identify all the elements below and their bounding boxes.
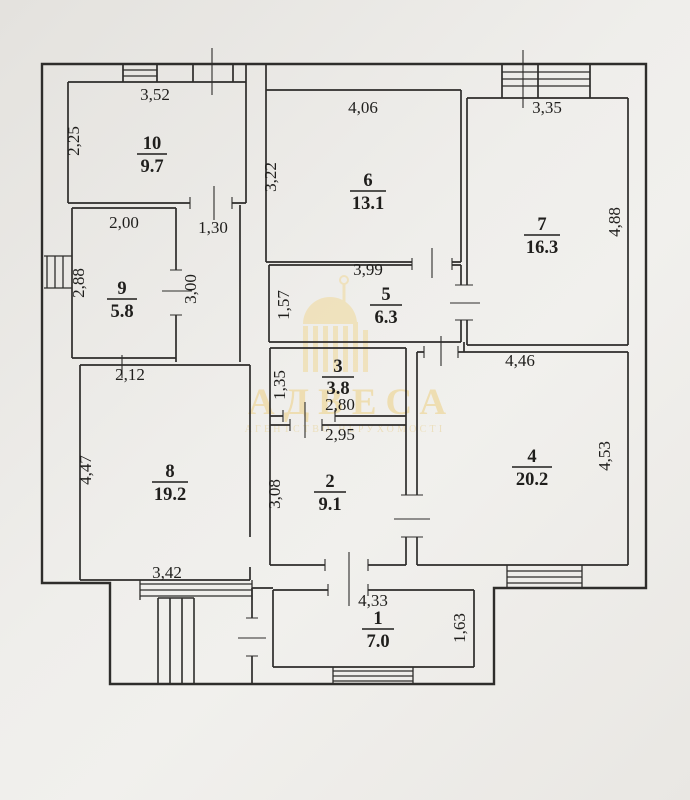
room-9-top-dim: 2,00 bbox=[109, 213, 139, 232]
room-8-number-label: 8 bbox=[165, 462, 174, 482]
room-8-bottom-dim: 3,42 bbox=[152, 563, 182, 582]
room-7-top-dim: 3,35 bbox=[532, 98, 562, 117]
room-6-top-dim: 4,06 bbox=[348, 98, 378, 117]
room-3-left-dim: 1,35 bbox=[270, 370, 289, 400]
room-4-area-label: 20.2 bbox=[516, 470, 548, 490]
room-3-number-label: 3 bbox=[333, 357, 342, 377]
room-1-area-label: 7.0 bbox=[366, 632, 389, 652]
room-2-top-dim: 2,95 bbox=[325, 425, 355, 444]
room-1-number-label: 1 bbox=[373, 609, 382, 629]
room-4-right-dim: 4,53 bbox=[595, 441, 614, 471]
room-6-number-label: 6 bbox=[363, 171, 372, 191]
room-7-right-dim: 4,88 bbox=[605, 207, 624, 237]
room-7-region bbox=[467, 98, 628, 345]
room-10-top-dim: 3,52 bbox=[140, 85, 170, 104]
corridor-top-dim: 1,30 bbox=[198, 218, 228, 237]
room-8-top-dim: 2,12 bbox=[115, 365, 145, 384]
room-5-top-dim: 3,99 bbox=[353, 260, 383, 279]
floor-plan-drawing: АДВЕСА АГЕНТСТВО НЕРУХОМОСТІ 3,52 2,25 2… bbox=[0, 0, 690, 800]
room-3-area-label: 3.8 bbox=[326, 379, 349, 399]
room-1-right-dim: 1,63 bbox=[450, 613, 469, 643]
staircase-steps bbox=[158, 598, 194, 684]
room-5-number-label: 5 bbox=[381, 285, 390, 305]
room-1-top-dim: 4,33 bbox=[358, 591, 388, 610]
room-5-left-dim: 1,57 bbox=[274, 290, 293, 320]
room-8-area-label: 19.2 bbox=[154, 485, 186, 505]
room-2-area-label: 9.1 bbox=[318, 495, 341, 515]
corridor-right-dim: 3,00 bbox=[181, 274, 200, 304]
room-10-number-label: 10 bbox=[143, 134, 162, 154]
room-9-number-label: 9 bbox=[117, 279, 126, 299]
room-7-number-label: 7 bbox=[537, 215, 546, 235]
room-4-number-label: 4 bbox=[527, 447, 536, 467]
scanned-floor-plan-page: АДВЕСА АГЕНТСТВО НЕРУХОМОСТІ 3,52 2,25 2… bbox=[0, 0, 690, 800]
room-4-top-dim: 4,46 bbox=[505, 351, 535, 370]
room-8-left-dim: 4,47 bbox=[76, 455, 95, 485]
room-2-number-label: 2 bbox=[325, 472, 334, 492]
room-6-left-dim: 3,22 bbox=[261, 162, 280, 192]
room-10-area-label: 9.7 bbox=[140, 157, 163, 177]
room-2-left-dim: 3,08 bbox=[265, 479, 284, 509]
room-9-area-label: 5.8 bbox=[110, 302, 133, 322]
room-9-left-dim: 2,88 bbox=[69, 268, 88, 298]
room-6-area-label: 13.1 bbox=[352, 194, 384, 214]
room-10-left-dim: 2,25 bbox=[64, 126, 83, 156]
room-7-area-label: 16.3 bbox=[526, 238, 558, 258]
room-5-area-label: 6.3 bbox=[374, 308, 397, 328]
